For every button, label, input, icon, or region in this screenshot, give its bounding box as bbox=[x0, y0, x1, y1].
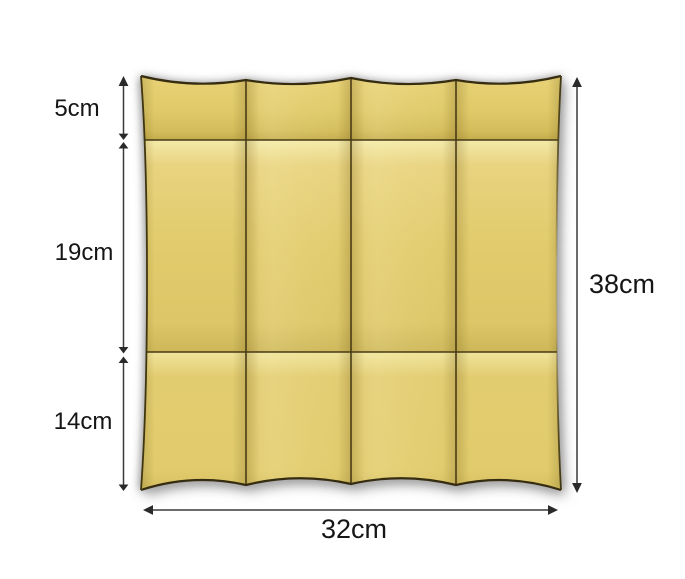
svg-text:5cm: 5cm bbox=[54, 95, 99, 122]
svg-text:19cm: 19cm bbox=[55, 239, 114, 266]
svg-text:32cm: 32cm bbox=[321, 514, 387, 544]
svg-text:38cm: 38cm bbox=[589, 269, 655, 299]
svg-text:14cm: 14cm bbox=[54, 408, 113, 435]
